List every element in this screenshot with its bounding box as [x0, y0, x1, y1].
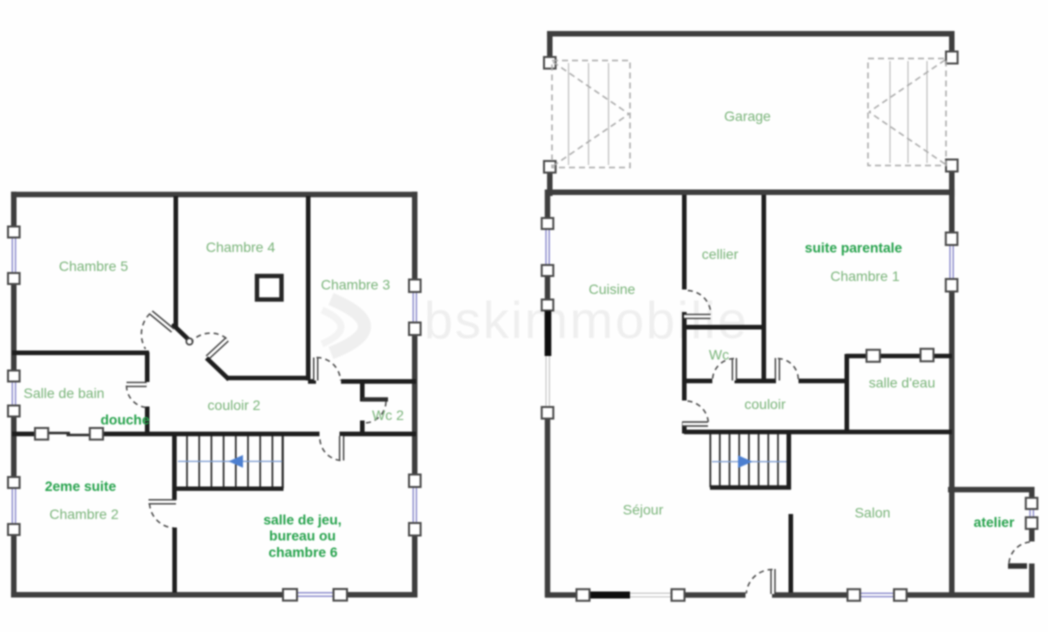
svg-text:chambre 6: chambre 6	[268, 545, 337, 560]
svg-text:2eme suite: 2eme suite	[45, 479, 117, 494]
svg-text:Garage: Garage	[724, 108, 771, 124]
svg-text:Chambre 4: Chambre 4	[206, 239, 275, 255]
svg-text:salle de jeu,: salle de jeu,	[263, 513, 341, 528]
svg-text:couloir 2: couloir 2	[208, 397, 261, 413]
svg-text:cellier: cellier	[702, 246, 739, 262]
svg-text:Salon: Salon	[855, 505, 891, 521]
svg-text:douche: douche	[100, 413, 149, 428]
svg-text:Salle de bain: Salle de bain	[24, 385, 105, 401]
svg-text:suite parentale: suite parentale	[805, 241, 903, 256]
svg-text:Chambre 5: Chambre 5	[59, 258, 128, 274]
svg-text:bskimmobilie: bskimmobilie	[424, 292, 749, 350]
svg-text:couloir: couloir	[744, 396, 786, 412]
svg-text:Cuisine: Cuisine	[589, 281, 636, 297]
svg-text:Wc 2: Wc 2	[372, 407, 404, 423]
svg-text:Séjour: Séjour	[623, 502, 664, 518]
svg-text:Chambre 1: Chambre 1	[830, 268, 899, 284]
svg-text:bureau ou: bureau ou	[269, 529, 336, 544]
svg-text:salle d'eau: salle d'eau	[869, 375, 936, 391]
svg-text:Chambre 2: Chambre 2	[49, 506, 118, 522]
svg-text:Chambre 3: Chambre 3	[321, 277, 390, 293]
svg-text:atelier: atelier	[974, 515, 1015, 530]
svg-text:Wc: Wc	[709, 347, 729, 363]
